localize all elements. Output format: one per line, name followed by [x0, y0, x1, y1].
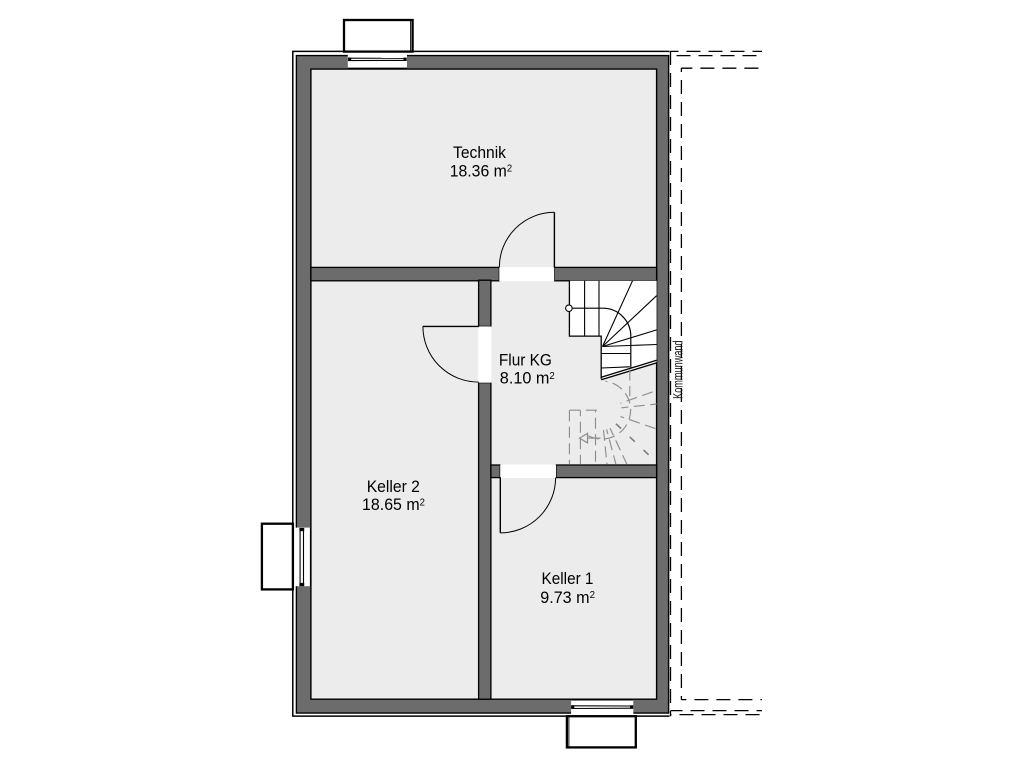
svg-text:Flur KG: Flur KG: [499, 350, 552, 369]
svg-text:Keller 2: Keller 2: [367, 477, 420, 496]
svg-text:9.73 m2: 9.73 m2: [540, 588, 595, 607]
svg-text:Kommunwand: Kommunwand: [671, 340, 686, 399]
svg-text:18.65 m2: 18.65 m2: [362, 495, 425, 514]
svg-text:8.10 m2: 8.10 m2: [500, 369, 555, 388]
svg-text:Keller 1: Keller 1: [542, 569, 594, 588]
svg-text:18.36 m2: 18.36 m2: [450, 161, 513, 180]
svg-text:Technik: Technik: [453, 143, 506, 162]
